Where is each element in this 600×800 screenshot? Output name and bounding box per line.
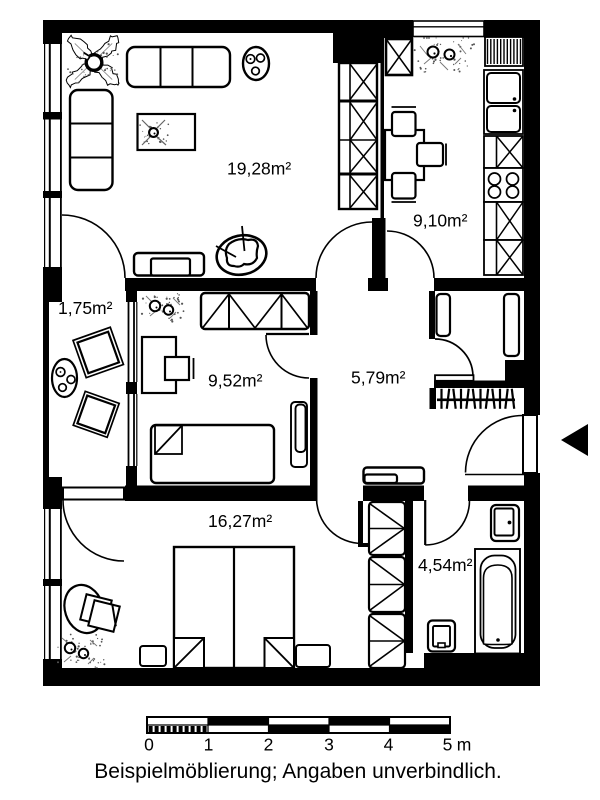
svg-text:5,79m²: 5,79m² <box>351 368 406 388</box>
svg-text:0: 0 <box>144 735 154 755</box>
svg-text:4: 4 <box>384 735 394 755</box>
svg-text:9,10m²: 9,10m² <box>413 211 468 231</box>
svg-text:m: m <box>457 735 472 755</box>
svg-text:3: 3 <box>324 735 334 755</box>
svg-text:5: 5 <box>443 735 453 755</box>
svg-text:16,27m²: 16,27m² <box>208 511 272 531</box>
svg-text:1: 1 <box>204 735 214 755</box>
svg-text:9,52m²: 9,52m² <box>208 371 263 391</box>
svg-text:2: 2 <box>264 735 274 755</box>
svg-text:1,75m²: 1,75m² <box>58 298 113 318</box>
svg-text:19,28m²: 19,28m² <box>227 159 291 179</box>
svg-text:4,54m²: 4,54m² <box>418 555 473 575</box>
svg-text:Beispielmöblierung; Angaben un: Beispielmöblierung; Angaben unverbindlic… <box>94 760 501 783</box>
